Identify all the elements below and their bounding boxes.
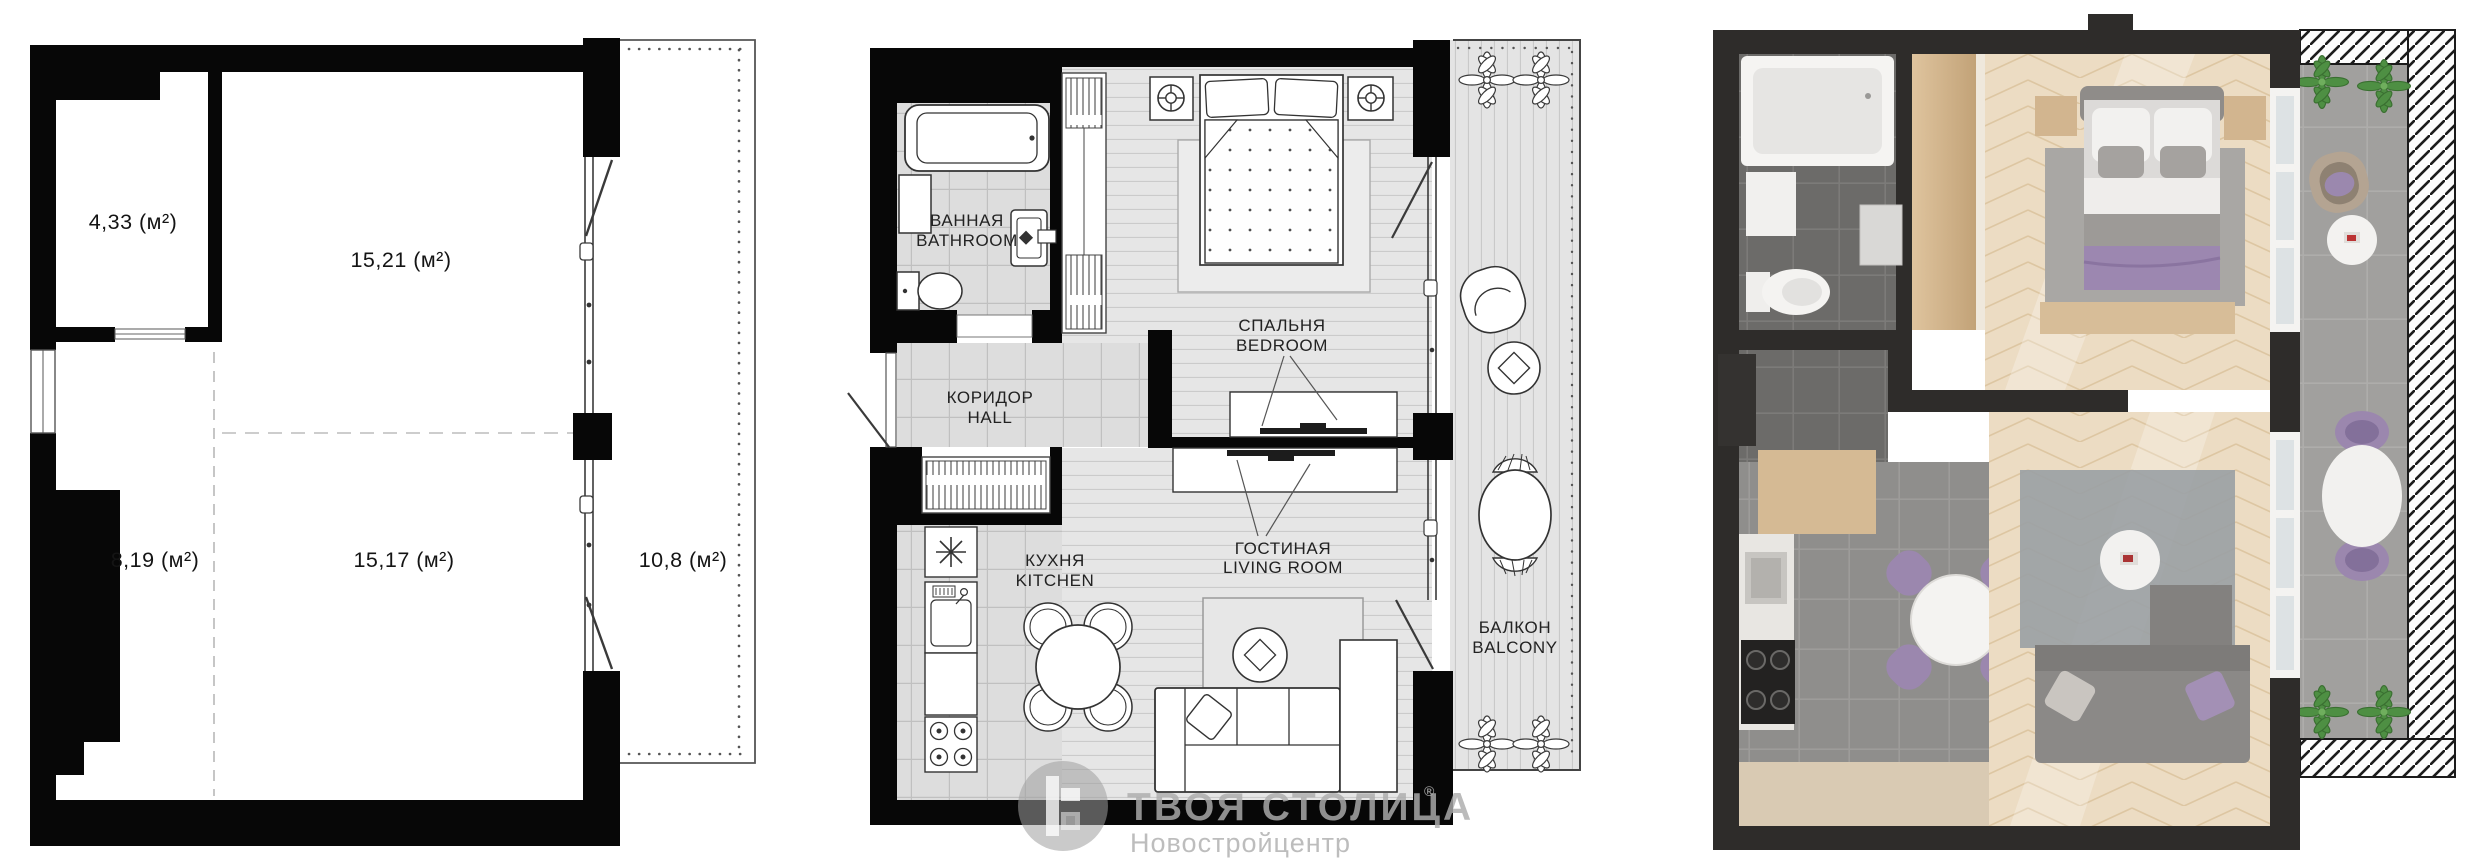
render3d-balcony: [2296, 30, 2455, 777]
kitchen-counters: [925, 527, 977, 772]
stove-3d: [1741, 640, 1795, 724]
label-bedroom-en: BEDROOM: [1236, 336, 1328, 355]
area-label-room-left: 8,19 (м²): [111, 548, 200, 572]
render3d-living: [1989, 412, 2270, 826]
detailed-balcony: [1450, 40, 1580, 772]
snowflake-icon: [936, 537, 966, 567]
bathroom-door-symbol: [1020, 230, 1056, 244]
toilet-icon: [897, 272, 962, 310]
balcony-side-table-3d: [2327, 215, 2377, 265]
bathroom-door-threshold: [957, 315, 1032, 337]
toilet-3d: [1746, 269, 1830, 315]
render3d-plan: [1713, 14, 2455, 850]
area-label-storage: 4,33 (м²): [89, 210, 178, 234]
label-hall-en: HALL: [968, 408, 1013, 427]
bedroom-wardrobe-icon: [1062, 73, 1106, 333]
watermark-registered: ®: [1424, 783, 1435, 799]
nightstand-3d-left: [2035, 96, 2077, 136]
label-bathroom-ru: ВАННАЯ: [930, 211, 1004, 230]
label-living-ru: ГОСТИНАЯ: [1235, 539, 1331, 558]
floor-plan-sheet: 4,33 (м²) 15,21 (м²) 8,19 (м²) 15,17 (м²…: [0, 0, 2472, 866]
label-kitchen-ru: КУХНЯ: [1025, 551, 1085, 570]
tv-console-bedroom: [1230, 392, 1397, 437]
label-bedroom-ru: СПАЛЬНЯ: [1238, 316, 1325, 335]
washing-machine-icon: [899, 175, 931, 233]
window-left-wall: [31, 350, 55, 433]
schematic-balcony: [620, 40, 755, 763]
stove-icon: [925, 717, 977, 772]
label-hall-ru: КОРИДОР: [947, 388, 1034, 407]
label-balcony-en: BALCONY: [1472, 638, 1557, 657]
render3d-kitchen: [1739, 450, 2033, 826]
entrance-door: [848, 353, 896, 447]
storage-door-sill: [115, 329, 185, 339]
bedroom-bench-3d: [2040, 302, 2235, 334]
kitchen-cabinet-3d: [1758, 450, 1876, 534]
label-bathroom-en: BATHROOM: [916, 231, 1018, 250]
hall-cabinet-3d: [1718, 354, 1756, 446]
bed-3d: [2080, 86, 2224, 290]
area-label-room-top: 15,21 (м²): [350, 248, 451, 272]
tv-console-living: [1173, 448, 1397, 492]
hall-wardrobe-icon: [922, 457, 1050, 513]
shelf-unit-icon: [1340, 640, 1397, 792]
nightstand-3d-right: [2224, 96, 2266, 140]
render3d-bathroom: [1739, 54, 1902, 330]
area-label-balcony: 10,8 (м²): [639, 548, 728, 572]
watermark-brand: ТВОЯ СТОЛИЦА: [1127, 786, 1474, 829]
bed-icon: [1150, 75, 1393, 292]
detailed-plan: ВАННАЯ BATHROOM КОРИДОР HALL СПАЛЬНЯ BED…: [848, 40, 1580, 825]
bath-cabinet-3d: [1746, 172, 1796, 236]
area-label-room-bottom: 15,17 (м²): [353, 548, 454, 572]
label-living-en: LIVING ROOM: [1223, 558, 1343, 577]
label-kitchen-en: KITCHEN: [1016, 571, 1095, 590]
schematic-plan: 4,33 (м²) 15,21 (м²) 8,19 (м²) 15,17 (м²…: [28, 36, 758, 850]
label-balcony-ru: БАЛКОН: [1479, 618, 1551, 637]
render3d-bedroom: [1985, 54, 2270, 390]
floor-plans-svg: 4,33 (м²) 15,21 (м²) 8,19 (м²) 15,17 (м²…: [0, 0, 2472, 866]
render3d-wardrobe: [1912, 54, 1985, 330]
render3d-hall-floor: [1739, 350, 1888, 462]
balcony-table-icon: [1488, 342, 1540, 394]
watermark-subtitle: Новостройцентр: [1130, 828, 1351, 858]
living-rug-icon: [1203, 598, 1363, 693]
shower-tray-3d: [1860, 205, 1902, 265]
watermark-logo-icon: [1018, 761, 1108, 851]
coffee-table-3d: [2100, 530, 2160, 590]
